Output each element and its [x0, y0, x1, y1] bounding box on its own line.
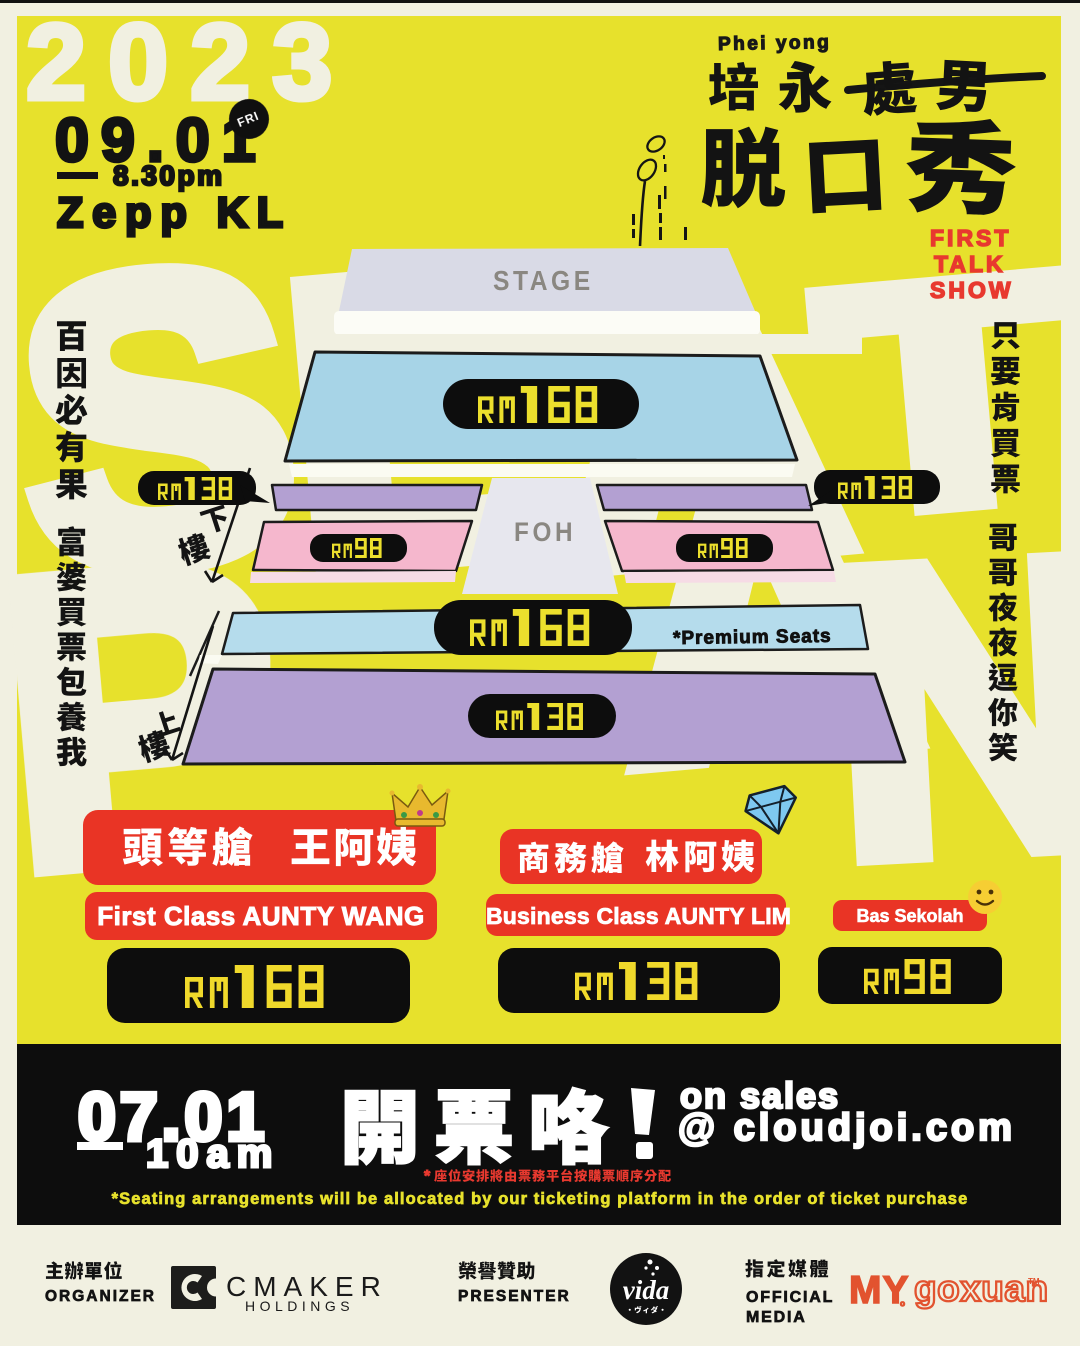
svg-text:vida: vida — [623, 1275, 670, 1305]
